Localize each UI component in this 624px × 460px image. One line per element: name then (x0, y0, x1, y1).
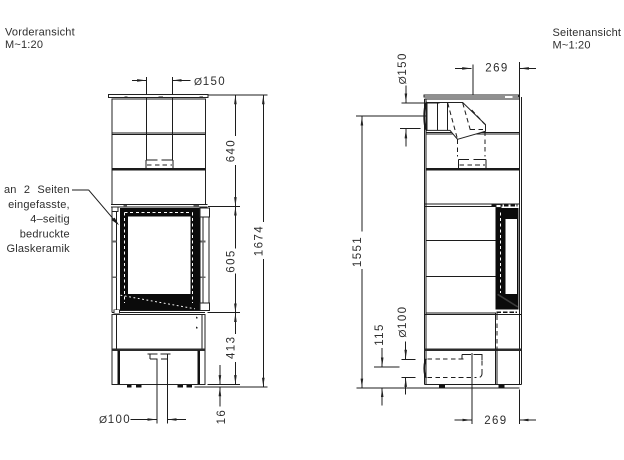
svg-text:Ø100: Ø100 (99, 414, 131, 426)
svg-text:Ø100: Ø100 (397, 306, 409, 338)
svg-text:1551: 1551 (352, 236, 364, 267)
svg-text:16: 16 (216, 409, 228, 425)
svg-text:413: 413 (225, 336, 237, 359)
svg-text:bedruckte: bedruckte (20, 228, 70, 240)
svg-text:605: 605 (225, 249, 237, 272)
svg-text:Ø150: Ø150 (194, 76, 226, 88)
svg-text:269: 269 (485, 63, 508, 75)
svg-text:269: 269 (484, 415, 507, 427)
svg-text:an 2 Seiten: an 2 Seiten (4, 184, 70, 196)
svg-text:Vorderansicht: Vorderansicht (5, 27, 75, 39)
svg-text:M~1:20: M~1:20 (553, 40, 591, 52)
svg-text:1674: 1674 (253, 225, 265, 256)
svg-text:640: 640 (225, 139, 237, 162)
svg-text:Glaskeramik: Glaskeramik (6, 243, 70, 255)
svg-text:M~1:20: M~1:20 (5, 39, 43, 51)
svg-text:4–seitig: 4–seitig (30, 214, 70, 226)
svg-text:Seitenansicht: Seitenansicht (553, 27, 622, 39)
svg-text:eingefasste,: eingefasste, (8, 199, 70, 211)
svg-text:115: 115 (374, 323, 386, 346)
svg-text:Ø150: Ø150 (397, 52, 409, 84)
